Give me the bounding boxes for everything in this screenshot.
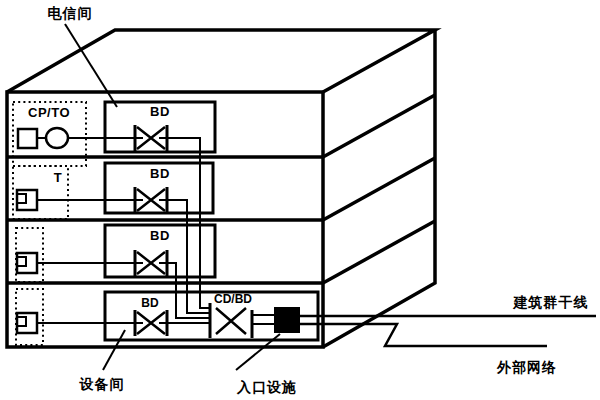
external-connections xyxy=(300,316,596,346)
bd-label-floor1: BD xyxy=(150,105,170,118)
cp-to-label: CP/TO xyxy=(28,106,70,119)
cdbd-cross-icon xyxy=(216,308,246,334)
floor-3-telecom-room xyxy=(16,225,215,318)
floor-4-equipment-room xyxy=(16,289,318,345)
equipment-room-label: 设备间 xyxy=(80,377,125,391)
external-network-label: 外部网络 xyxy=(497,360,557,374)
bd-label-floor2: BD xyxy=(150,167,170,180)
side-floor-line-3 xyxy=(323,221,435,283)
terminal-outlet-icon xyxy=(46,128,68,148)
external-network-line xyxy=(300,324,547,346)
cdbd-to-entrance-cables xyxy=(252,315,274,324)
telecom-room-label: 电信间 xyxy=(48,6,93,20)
telecom-room-pointer-line xyxy=(65,24,117,107)
riser-cable-floor2 xyxy=(167,200,210,313)
cabling-system-diagram: 电信间 CP/TO T BD BD BD BD CD/BD 建筑群干线 外部网络… xyxy=(0,0,600,400)
bd-label-floor3: BD xyxy=(150,229,170,242)
consolidation-point-icon xyxy=(18,129,37,148)
telecom-outlet-notch-f2 xyxy=(17,194,26,203)
side-floor-line-2 xyxy=(323,158,435,220)
telecom-outlet-notch-f3 xyxy=(17,257,26,266)
t-label: T xyxy=(54,171,62,184)
telecom-outlet-notch-f4 xyxy=(17,317,26,326)
cd-bd-label: CD/BD xyxy=(214,293,252,305)
building-roof xyxy=(7,30,435,92)
entrance-facility-icon xyxy=(274,307,300,333)
side-floor-line-1 xyxy=(323,95,435,157)
callout-pointers xyxy=(65,24,280,370)
campus-backbone-label: 建筑群干线 xyxy=(514,295,589,309)
bd-label-floor4: BD xyxy=(141,297,158,309)
diagram-canvas xyxy=(0,0,600,400)
entrance-facility-label: 入口设施 xyxy=(237,380,297,394)
